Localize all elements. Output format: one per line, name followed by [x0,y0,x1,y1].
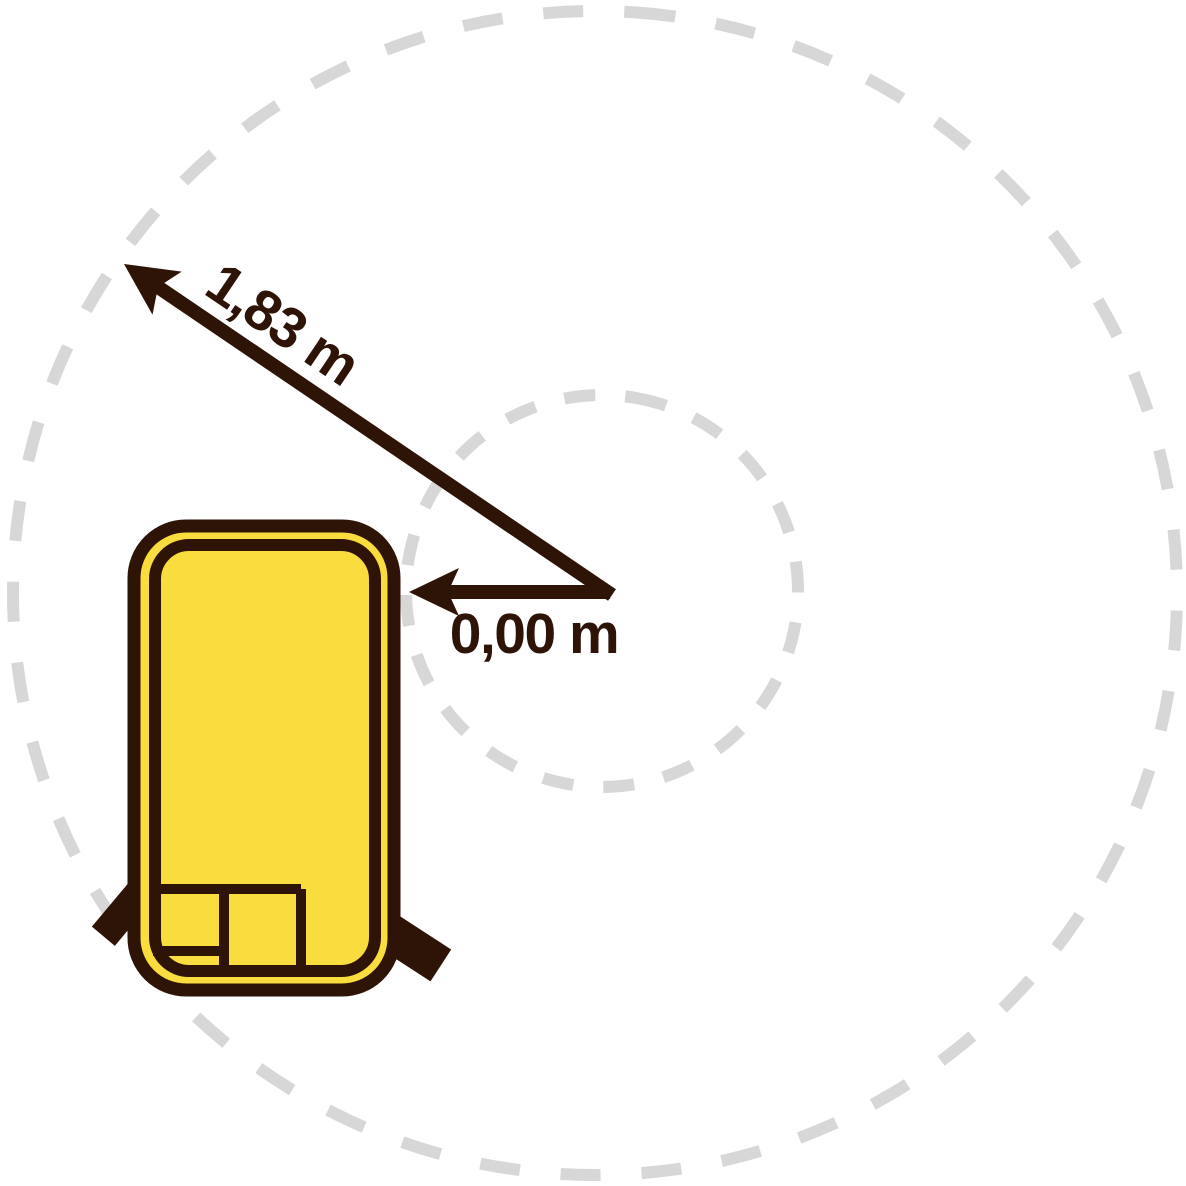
machine-body-outline [134,526,394,990]
machine-top-view [92,526,451,990]
diagram-canvas: 1,83 m 0,00 m [0,0,1186,1186]
inner-radius-label: 0,00 m [450,602,618,666]
swing-radius-diagram: 1,83 m 0,00 m [0,0,1186,1186]
